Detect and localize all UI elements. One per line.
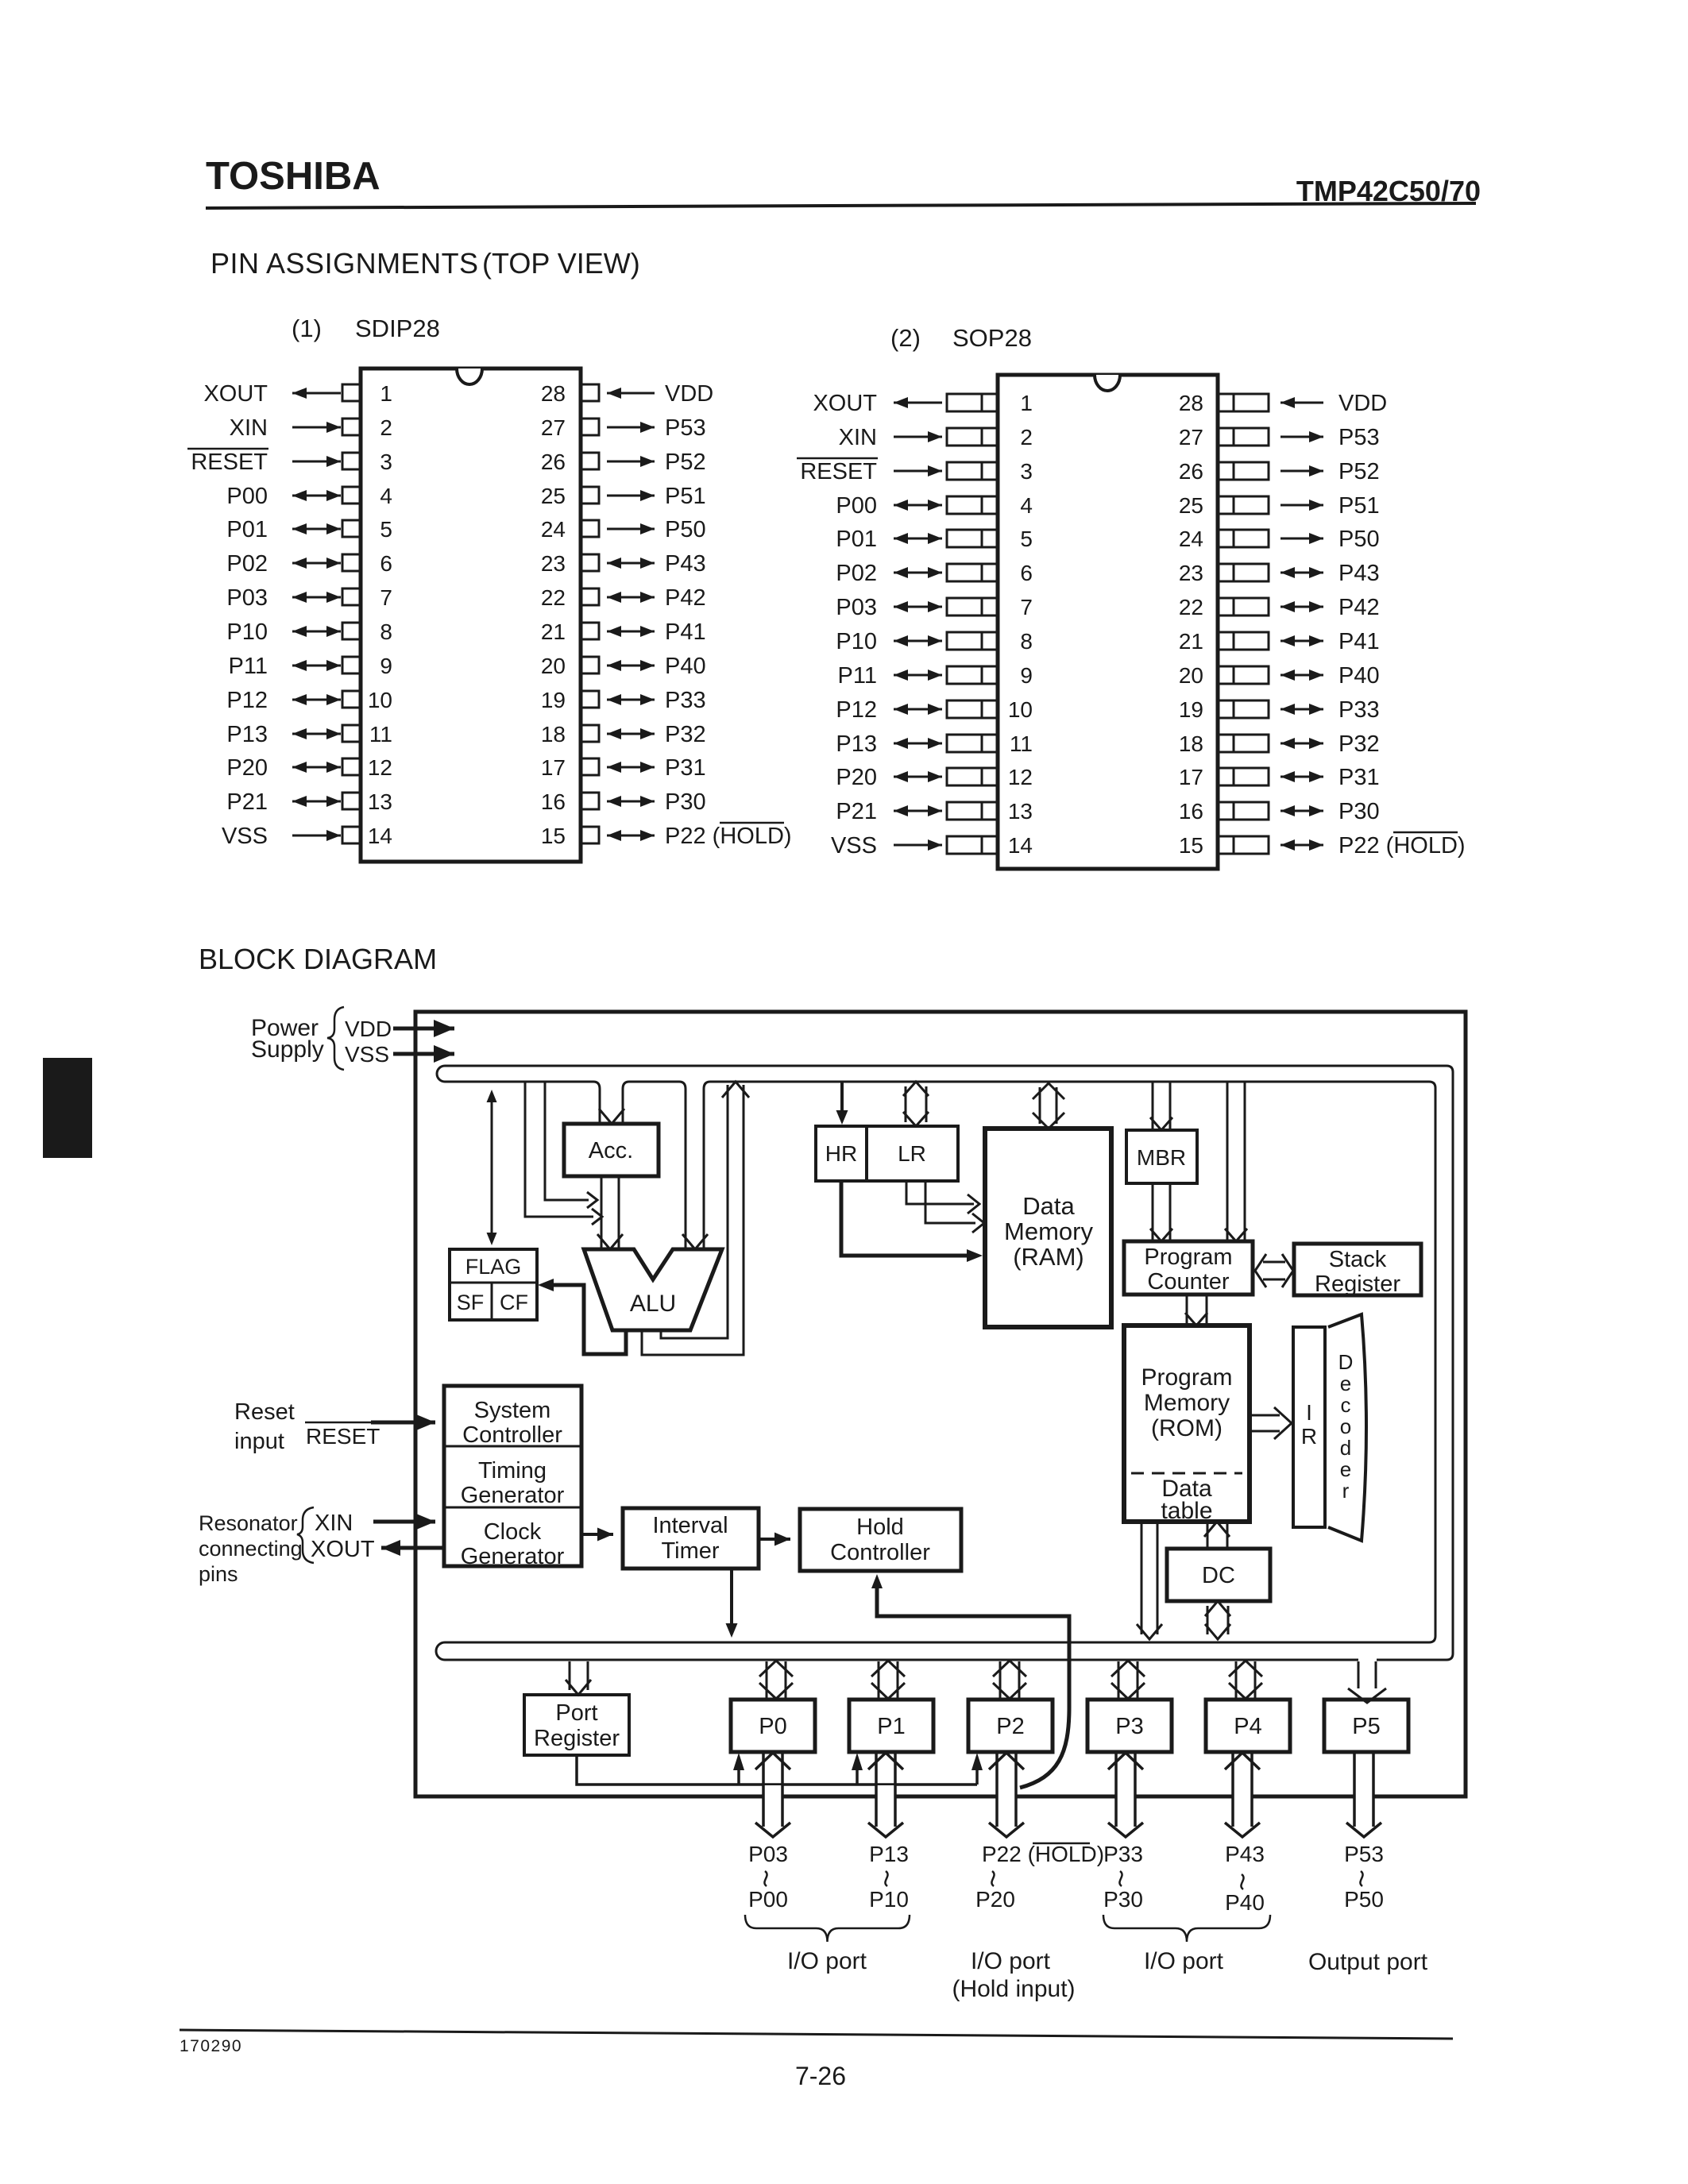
svg-text:d: d <box>1340 1436 1351 1460</box>
svg-text:(ROM): (ROM) <box>1151 1415 1223 1441</box>
svg-text:P13: P13 <box>226 722 268 747</box>
svg-text:P41: P41 <box>1338 629 1380 654</box>
svg-text:XOUT: XOUT <box>813 391 877 416</box>
svg-text:10: 10 <box>368 688 392 712</box>
svg-text:(2): (2) <box>890 324 921 352</box>
svg-text:P30: P30 <box>1103 1887 1143 1912</box>
svg-text:DC: DC <box>1202 1563 1235 1588</box>
svg-text:P51: P51 <box>1338 493 1380 519</box>
svg-text:22: 22 <box>1179 595 1203 619</box>
svg-text:P22 (HOLD): P22 (HOLD) <box>665 824 792 849</box>
svg-text:c: c <box>1341 1393 1351 1417</box>
svg-text:RESET: RESET <box>191 450 268 475</box>
svg-text:R: R <box>1301 1424 1317 1449</box>
svg-text:RESET: RESET <box>800 459 877 484</box>
svg-text:6: 6 <box>1020 561 1033 585</box>
svg-text:12: 12 <box>1008 765 1033 789</box>
svg-text:Memory: Memory <box>1144 1390 1230 1416</box>
svg-text:Reset: Reset <box>234 1399 295 1425</box>
svg-text:XOUT: XOUT <box>203 381 268 407</box>
svg-text:P32: P32 <box>1338 731 1380 757</box>
svg-text:P0: P0 <box>759 1714 786 1739</box>
svg-text:P50: P50 <box>1344 1887 1384 1912</box>
svg-text:28: 28 <box>541 381 566 406</box>
svg-text:13: 13 <box>1008 799 1033 824</box>
svg-text:1: 1 <box>1020 391 1033 415</box>
svg-text:19: 19 <box>541 688 566 712</box>
svg-text:16: 16 <box>541 789 566 814</box>
svg-text:pins: pins <box>199 1562 238 1586</box>
svg-text:14: 14 <box>1008 833 1033 858</box>
svg-text:P31: P31 <box>1338 765 1380 790</box>
svg-text:VDD: VDD <box>665 381 713 407</box>
svg-text:e: e <box>1340 1372 1351 1395</box>
svg-text:input: input <box>234 1429 284 1454</box>
svg-text:P40: P40 <box>1225 1890 1265 1915</box>
svg-text:3: 3 <box>380 450 392 474</box>
svg-text:Supply: Supply <box>251 1036 324 1063</box>
svg-text:P4: P4 <box>1234 1714 1261 1739</box>
svg-text:7-26: 7-26 <box>795 2062 846 2090</box>
svg-text:VSS: VSS <box>345 1042 389 1067</box>
svg-text:P01: P01 <box>226 517 268 542</box>
svg-text:20: 20 <box>1179 663 1203 688</box>
svg-text:P43: P43 <box>665 551 706 577</box>
svg-text:P2: P2 <box>996 1714 1024 1739</box>
svg-text:XIN: XIN <box>230 415 268 441</box>
svg-text:23: 23 <box>541 551 566 576</box>
svg-text:RESET: RESET <box>306 1424 380 1449</box>
svg-text:P42: P42 <box>665 585 706 611</box>
svg-text:7: 7 <box>380 585 392 610</box>
svg-text:System: System <box>474 1398 551 1423</box>
svg-text:P12: P12 <box>836 697 877 723</box>
svg-text:Program: Program <box>1144 1244 1232 1270</box>
svg-text:16: 16 <box>1179 799 1203 824</box>
svg-text:Generator: Generator <box>461 1544 565 1569</box>
svg-text:Timing: Timing <box>478 1458 547 1484</box>
svg-text:9: 9 <box>1020 663 1033 688</box>
svg-text:P01: P01 <box>836 527 877 552</box>
svg-text:11: 11 <box>1010 731 1033 756</box>
svg-text:P40: P40 <box>1338 663 1380 689</box>
svg-text:14: 14 <box>368 824 392 848</box>
svg-text:VDD: VDD <box>1338 391 1387 416</box>
svg-text:P43: P43 <box>1338 561 1380 586</box>
svg-text:VSS: VSS <box>831 833 877 859</box>
svg-text:SF: SF <box>457 1291 485 1314</box>
svg-text:Stack: Stack <box>1329 1247 1387 1272</box>
svg-text:BLOCK DIAGRAM: BLOCK DIAGRAM <box>199 943 437 975</box>
svg-text:P51: P51 <box>665 484 706 509</box>
svg-text:8: 8 <box>380 619 392 644</box>
svg-text:P20: P20 <box>975 1887 1015 1912</box>
svg-text:connecting: connecting <box>199 1537 303 1561</box>
svg-text:table: table <box>1161 1498 1212 1524</box>
svg-text:P10: P10 <box>869 1887 909 1912</box>
svg-text:ALU: ALU <box>630 1291 676 1317</box>
svg-text:7: 7 <box>1020 595 1033 619</box>
svg-text:o: o <box>1340 1414 1351 1438</box>
svg-text:FLAG: FLAG <box>465 1255 522 1279</box>
svg-text:12: 12 <box>368 755 392 780</box>
svg-text:2: 2 <box>1020 425 1033 450</box>
svg-text:P5: P5 <box>1352 1714 1380 1739</box>
svg-text:25: 25 <box>541 484 566 508</box>
svg-text:Counter: Counter <box>1147 1269 1230 1295</box>
svg-text:Register: Register <box>1315 1271 1400 1297</box>
svg-text:Timer: Timer <box>661 1538 719 1564</box>
svg-text:21: 21 <box>541 619 566 644</box>
svg-text:P3: P3 <box>1115 1714 1143 1739</box>
svg-text:P00: P00 <box>748 1887 788 1912</box>
svg-text:P33: P33 <box>1338 697 1380 723</box>
svg-text:P10: P10 <box>836 629 877 654</box>
svg-text:XIN: XIN <box>839 425 877 450</box>
svg-text:P42: P42 <box>1338 595 1380 620</box>
svg-text:26: 26 <box>541 450 566 474</box>
svg-text:(Hold input): (Hold input) <box>952 1976 1075 2002</box>
svg-text:Register: Register <box>534 1726 620 1751</box>
svg-text:Generator: Generator <box>461 1483 565 1508</box>
svg-text:I: I <box>1306 1400 1312 1425</box>
svg-text:18: 18 <box>541 722 566 747</box>
svg-text:HR: HR <box>825 1141 857 1166</box>
svg-text:P53: P53 <box>665 415 706 441</box>
svg-text:P00: P00 <box>226 484 268 509</box>
svg-text:(1): (1) <box>292 314 322 342</box>
svg-text:P03: P03 <box>226 585 268 611</box>
svg-text:17: 17 <box>541 755 566 780</box>
svg-text:I/O port: I/O port <box>787 1948 867 1974</box>
svg-text:P21: P21 <box>226 789 268 815</box>
svg-text:P40: P40 <box>665 654 706 679</box>
svg-text:Port: Port <box>555 1700 597 1726</box>
svg-text:Interval: Interval <box>652 1513 728 1538</box>
svg-text:2: 2 <box>380 415 392 440</box>
svg-text:XIN: XIN <box>315 1511 353 1536</box>
svg-text:P33: P33 <box>1103 1842 1143 1866</box>
svg-text:D: D <box>1338 1350 1354 1374</box>
svg-text:8: 8 <box>1020 629 1033 654</box>
svg-text:P41: P41 <box>665 619 706 645</box>
svg-text:Memory: Memory <box>1004 1217 1093 1245</box>
svg-text:P13: P13 <box>869 1842 909 1866</box>
svg-text:SOP28: SOP28 <box>952 324 1032 352</box>
svg-text:I/O port: I/O port <box>971 1948 1051 1974</box>
svg-text:(RAM): (RAM) <box>1013 1243 1084 1271</box>
svg-text:P20: P20 <box>836 765 877 790</box>
svg-text:22: 22 <box>541 585 566 610</box>
svg-text:P1: P1 <box>877 1714 905 1739</box>
svg-text:P43: P43 <box>1225 1842 1265 1866</box>
svg-text:4: 4 <box>380 484 392 508</box>
svg-text:XOUT: XOUT <box>311 1537 375 1562</box>
svg-text:18: 18 <box>1179 731 1203 756</box>
svg-text:15: 15 <box>541 824 566 848</box>
svg-text:MBR: MBR <box>1137 1145 1186 1170</box>
svg-text:P00: P00 <box>836 493 877 519</box>
svg-text:170290: 170290 <box>180 2037 242 2055</box>
svg-text:19: 19 <box>1179 697 1203 722</box>
svg-text:5: 5 <box>380 517 392 542</box>
svg-text:13: 13 <box>368 789 392 814</box>
svg-text:28: 28 <box>1179 391 1203 415</box>
svg-text:SDIP28: SDIP28 <box>355 314 440 342</box>
svg-text:P31: P31 <box>665 755 706 781</box>
svg-text:I/O port: I/O port <box>1144 1948 1224 1974</box>
svg-text:P02: P02 <box>226 551 268 577</box>
svg-text:P10: P10 <box>226 619 268 645</box>
svg-text:9: 9 <box>380 654 392 678</box>
svg-text:Clock: Clock <box>484 1519 542 1545</box>
svg-text:27: 27 <box>1179 425 1203 450</box>
svg-text:15: 15 <box>1179 833 1203 858</box>
svg-text:P22 (HOLD): P22 (HOLD) <box>982 1842 1104 1866</box>
svg-text:P52: P52 <box>665 450 706 475</box>
svg-text:LR: LR <box>898 1141 926 1166</box>
svg-text:25: 25 <box>1179 493 1203 518</box>
svg-text:P03: P03 <box>836 595 877 620</box>
svg-text:e: e <box>1340 1457 1351 1481</box>
svg-text:P11: P11 <box>229 654 268 679</box>
svg-text:P33: P33 <box>665 688 706 713</box>
svg-text:P21: P21 <box>836 799 877 824</box>
svg-text:23: 23 <box>1179 561 1203 585</box>
svg-text:P13: P13 <box>836 731 877 757</box>
svg-text:P53: P53 <box>1344 1842 1384 1866</box>
svg-text:P52: P52 <box>1338 459 1380 484</box>
svg-text:VSS: VSS <box>222 824 268 849</box>
svg-text:17: 17 <box>1179 765 1203 789</box>
svg-text:26: 26 <box>1179 459 1203 484</box>
svg-text:Resonator: Resonator <box>199 1511 298 1535</box>
svg-text:P11: P11 <box>838 663 877 689</box>
svg-text:P30: P30 <box>665 789 706 815</box>
svg-text:Program: Program <box>1141 1364 1232 1391</box>
svg-text:4: 4 <box>1020 493 1033 518</box>
svg-text:P20: P20 <box>226 755 268 781</box>
svg-text:P50: P50 <box>1338 527 1380 552</box>
svg-text:5: 5 <box>1020 527 1033 551</box>
svg-text:Hold: Hold <box>856 1515 904 1540</box>
svg-text:27: 27 <box>541 415 566 440</box>
svg-text:Controller: Controller <box>462 1422 562 1448</box>
svg-text:P32: P32 <box>665 722 706 747</box>
svg-text:TMP42C50/70: TMP42C50/70 <box>1296 175 1481 207</box>
svg-text:3: 3 <box>1020 459 1033 484</box>
svg-text:P30: P30 <box>1338 799 1380 824</box>
svg-text:6: 6 <box>380 551 392 576</box>
svg-text:(TOP VIEW): (TOP VIEW) <box>482 247 640 280</box>
svg-text:P22 (HOLD): P22 (HOLD) <box>1338 833 1466 859</box>
svg-text:CF: CF <box>500 1291 528 1314</box>
svg-text:24: 24 <box>541 517 566 542</box>
svg-text:TOSHIBA: TOSHIBA <box>206 155 380 198</box>
svg-text:VDD: VDD <box>345 1017 392 1041</box>
svg-text:P02: P02 <box>836 561 877 586</box>
svg-text:P50: P50 <box>665 517 706 542</box>
svg-text:P12: P12 <box>226 688 268 713</box>
svg-text:P53: P53 <box>1338 425 1380 450</box>
svg-text:20: 20 <box>541 654 566 678</box>
svg-text:P03: P03 <box>748 1842 788 1866</box>
svg-text:Controller: Controller <box>830 1540 930 1565</box>
svg-text:PIN ASSIGNMENTS: PIN ASSIGNMENTS <box>211 247 479 280</box>
svg-text:r: r <box>1342 1479 1350 1503</box>
svg-text:21: 21 <box>1179 629 1203 654</box>
svg-text:Output port: Output port <box>1308 1949 1428 1975</box>
svg-text:24: 24 <box>1179 527 1203 551</box>
svg-text:1: 1 <box>380 381 392 406</box>
svg-text:11: 11 <box>369 722 392 747</box>
svg-text:Acc.: Acc. <box>589 1138 633 1163</box>
svg-text:10: 10 <box>1008 697 1033 722</box>
svg-text:Data: Data <box>1022 1192 1075 1220</box>
